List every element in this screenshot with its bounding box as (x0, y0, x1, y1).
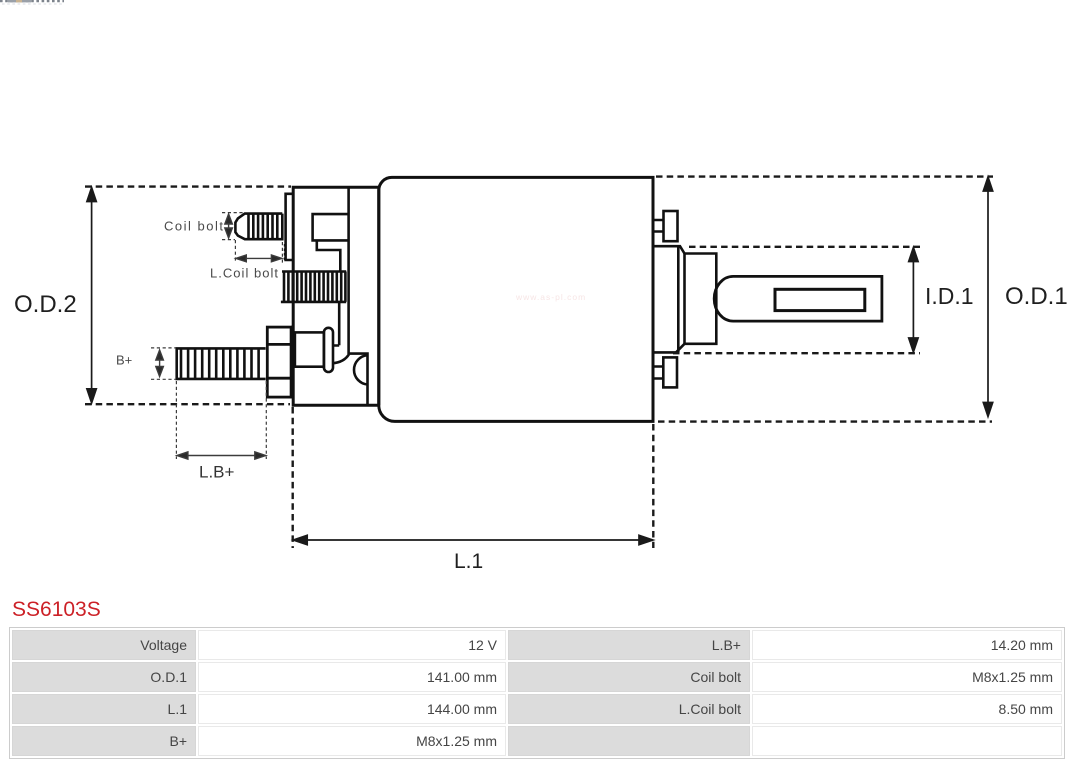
svg-text:L.B+: L.B+ (199, 463, 235, 482)
svg-text:L.Coil bolt: L.Coil bolt (210, 266, 278, 281)
svg-text:L.1: L.1 (454, 550, 483, 573)
svg-text:I.D.1: I.D.1 (925, 283, 974, 309)
svg-text:O.D.2: O.D.2 (14, 291, 77, 318)
svg-text:Coil bolt: Coil bolt (164, 219, 223, 234)
svg-text:www.as-pl.com: www.as-pl.com (515, 292, 586, 302)
svg-text:B+: B+ (116, 353, 132, 368)
svg-text:O.D.1: O.D.1 (1005, 283, 1068, 310)
